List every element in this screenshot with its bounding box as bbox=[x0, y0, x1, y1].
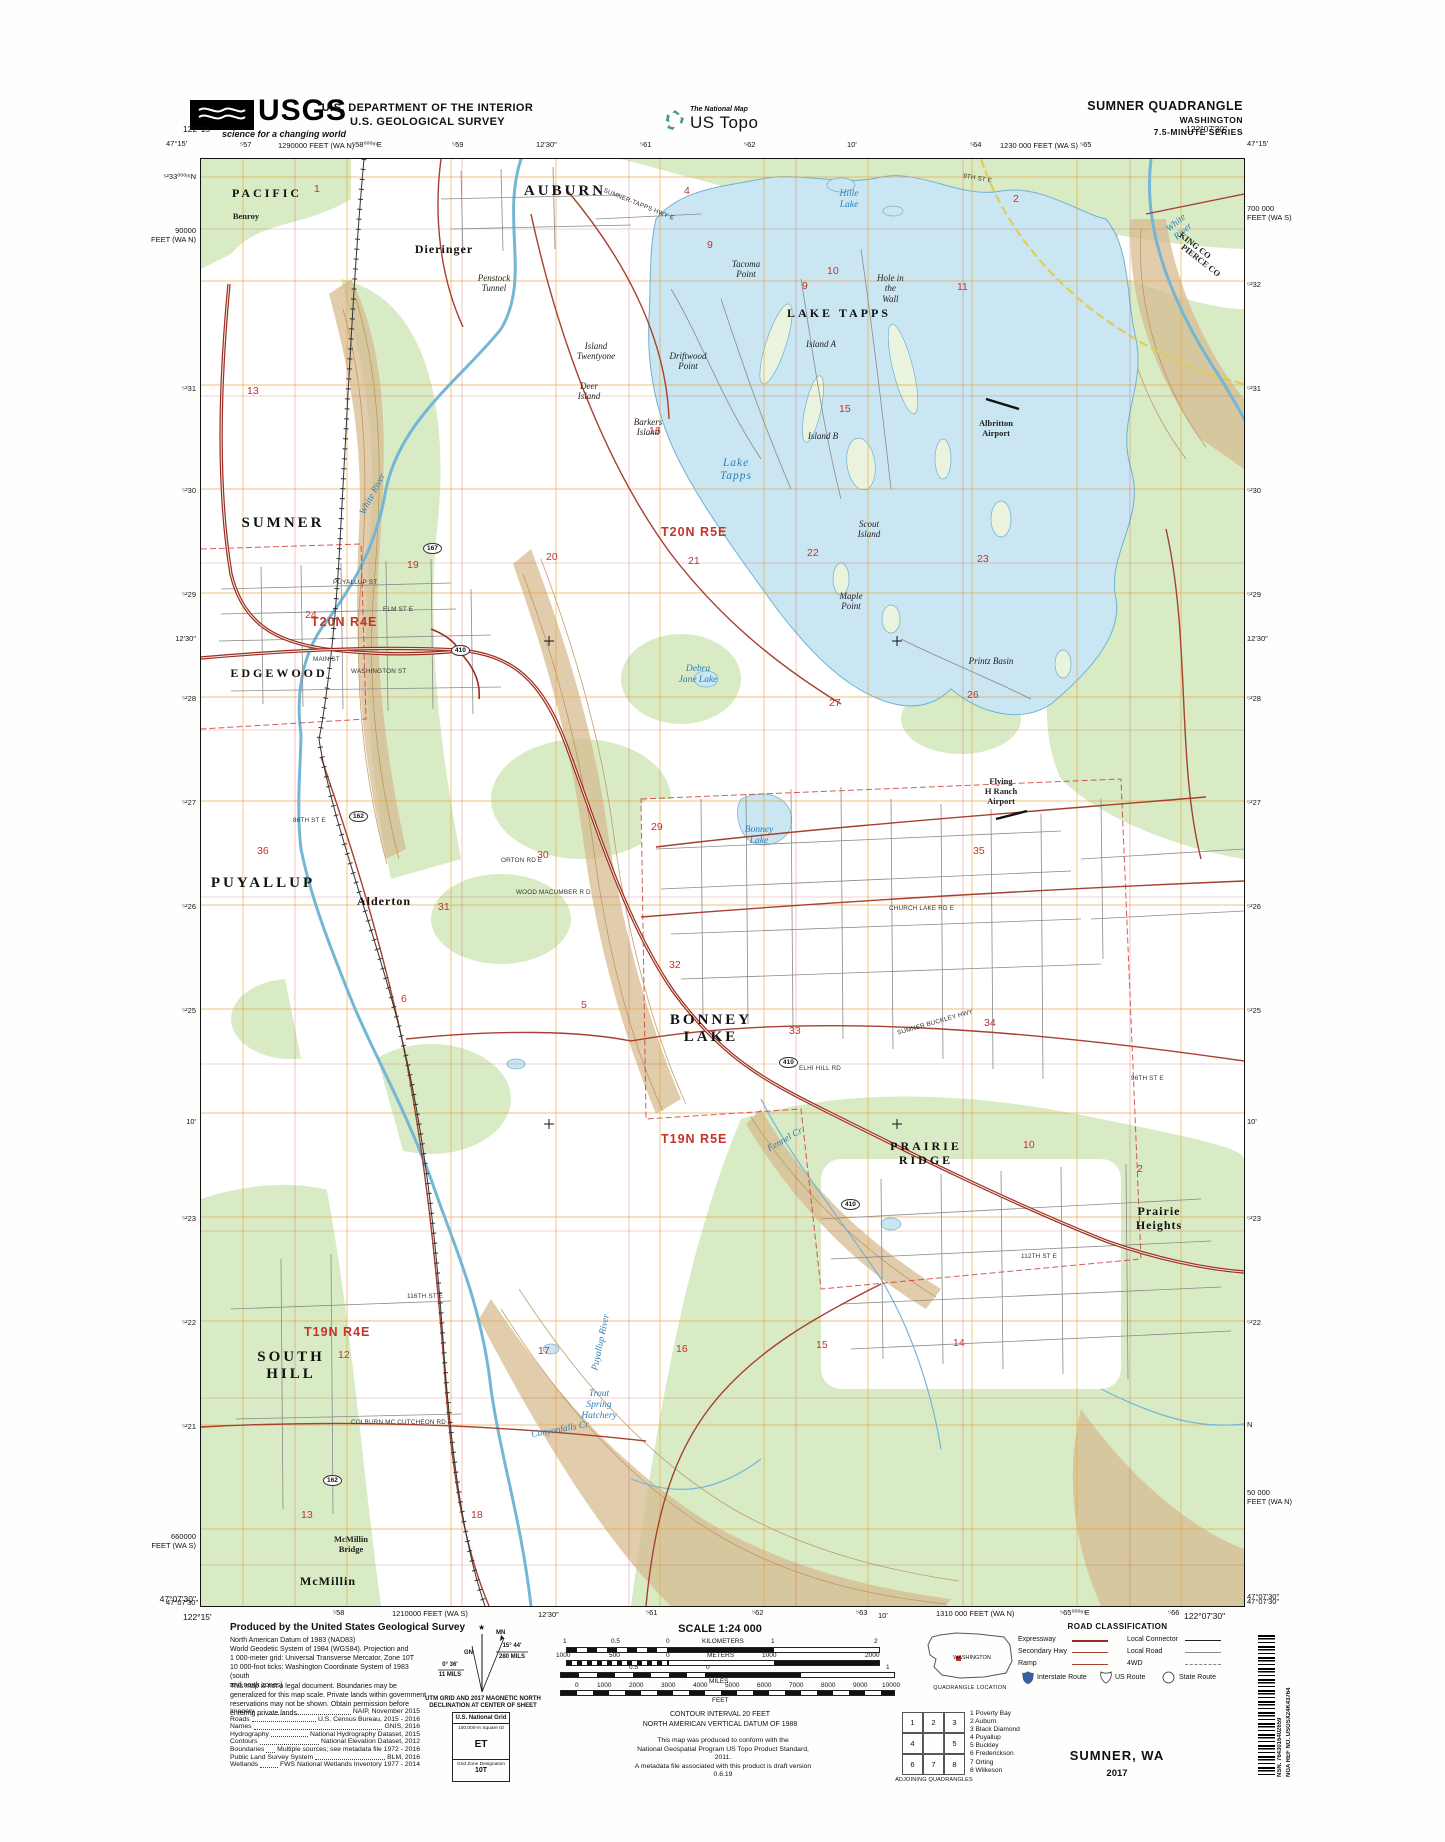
credit-row: RoadsU.S. Census Bureau, 2015 - 2016 bbox=[230, 1716, 420, 1724]
scalebar-kilometers bbox=[566, 1647, 880, 1653]
margin-label: 660000 bbox=[146, 1532, 196, 1541]
place-bonney-lake: BONNEY LAKE bbox=[670, 1012, 752, 1047]
map-label: 96TH ST E bbox=[1131, 1075, 1164, 1082]
margin-label: ⁵²27 bbox=[1247, 798, 1261, 807]
map-label: 35 bbox=[973, 845, 985, 857]
map-label: 2 bbox=[1013, 193, 1019, 205]
map-label: 9 bbox=[707, 239, 713, 251]
datum-line: 1 000-meter grid: Universal Transverse M… bbox=[230, 1654, 430, 1663]
margin-label: ⁵²26 bbox=[146, 902, 196, 911]
barcode-nsn: NSN. 7643016402659 bbox=[1277, 1635, 1283, 1777]
magnetic-north-label: MN bbox=[496, 1630, 505, 1637]
legend-4wd: 4WD bbox=[1127, 1660, 1143, 1667]
quadloc-caption: QUADRANGLE LOCATION bbox=[920, 1685, 1020, 1691]
map-label: 13 bbox=[301, 1509, 313, 1521]
dots-leader bbox=[252, 1721, 316, 1722]
adjoining-grid: 12345678 bbox=[902, 1712, 965, 1775]
township-t20n-r4e: T20N R4E bbox=[311, 615, 377, 629]
contour-note: CONTOUR INTERVAL 20 FEET NORTH AMERICAN … bbox=[640, 1710, 800, 1729]
credit-row: HydrographyNational Hydrography Dataset,… bbox=[230, 1731, 420, 1739]
margin-label: ⁵²32 bbox=[1247, 280, 1261, 289]
scale-label: 2 bbox=[874, 1638, 878, 1645]
national-map-logo: The National Map US Topo bbox=[664, 106, 758, 133]
map-label: 17 bbox=[538, 1345, 550, 1357]
credit-key: Boundaries bbox=[230, 1746, 264, 1754]
place-edgewood: EDGEWOOD bbox=[230, 667, 327, 681]
ramp-line bbox=[1072, 1664, 1108, 1665]
scale-label: 0 bbox=[575, 1682, 579, 1689]
barcode bbox=[1258, 1635, 1275, 1775]
department-heading: U.S. DEPARTMENT OF THE INTERIOR U.S. GEO… bbox=[285, 101, 570, 129]
margin-label: 122°15' bbox=[183, 1612, 212, 1622]
place-south-hill: SOUTH HILL bbox=[257, 1349, 325, 1384]
margin-label: 1210000 FEET (WA S) bbox=[392, 1609, 468, 1618]
dots-leader bbox=[260, 1744, 319, 1745]
margin-label: 10' bbox=[847, 140, 857, 149]
map-label: McMillin Bridge bbox=[334, 1535, 368, 1555]
credit-key: Hydrography bbox=[230, 1731, 269, 1739]
map-label: Debra Jane Lake bbox=[679, 664, 718, 686]
place-mcmillin: McMillin bbox=[300, 1575, 356, 1589]
map-label: 1 bbox=[314, 183, 320, 195]
credit-key: Imagery bbox=[230, 1708, 255, 1716]
margin-label: ⁵63 bbox=[856, 1608, 867, 1617]
scale-label: METERS bbox=[707, 1652, 734, 1659]
map-label: PUYALLUP ST bbox=[333, 579, 377, 586]
map-label: ORTON RD E bbox=[501, 857, 542, 864]
map-label: 31 bbox=[438, 901, 450, 913]
place-lake-tapps: LAKE TAPPS bbox=[787, 307, 891, 321]
map-label: White River bbox=[358, 472, 389, 517]
credit-row: Public Land Survey SystemBLM, 2016 bbox=[230, 1754, 420, 1762]
map-label: ELHI HILL RD bbox=[799, 1065, 841, 1072]
scale-label: 6000 bbox=[757, 1682, 771, 1689]
margin-label: 90000 bbox=[146, 226, 196, 235]
map-label: Island A bbox=[806, 339, 836, 349]
margin-label: ⁵65⁰⁰⁰ᵐE bbox=[1060, 1608, 1090, 1617]
adjoining-cell: 5 bbox=[944, 1733, 966, 1755]
map-label: Hole in the Wall bbox=[877, 273, 904, 304]
legend-local-road: Local Road bbox=[1127, 1648, 1162, 1655]
scale-label: 0 bbox=[666, 1652, 670, 1659]
map-label: 24 bbox=[305, 609, 317, 621]
legend-expressway: Expressway bbox=[1018, 1636, 1056, 1643]
margin-label: ⁵61 bbox=[646, 1608, 657, 1617]
natmap-small-label: The National Map bbox=[690, 106, 758, 113]
map-label: Scout Island bbox=[858, 519, 881, 540]
margin-label: 10' bbox=[146, 1117, 196, 1126]
map-label: SUMNER-TAPPS HWY E bbox=[602, 187, 675, 222]
scale-label: 8000 bbox=[821, 1682, 835, 1689]
margin-label: ⁵²28 bbox=[146, 694, 196, 703]
map-label: 12 bbox=[338, 1349, 350, 1361]
standard-line: A metadata file associated with this pro… bbox=[630, 1763, 816, 1780]
route-shield-410: 410 bbox=[841, 1199, 860, 1210]
usng-zone-label: Grid Zone Designation bbox=[453, 1759, 509, 1767]
map-label: Island Twentyone bbox=[577, 341, 615, 362]
datum-line: World Geodetic System of 1984 (WGS84). P… bbox=[230, 1645, 430, 1654]
quad-name: SUMNER QUADRANGLE bbox=[1020, 99, 1243, 113]
map-label: 4 bbox=[684, 185, 690, 197]
map-label: SUMNER BUCKLEY HWY bbox=[897, 1008, 974, 1037]
production-credits: Produced by the United States Geological… bbox=[230, 1622, 430, 1690]
credit-value: BLM, 2016 bbox=[387, 1754, 420, 1762]
adjoining-cell bbox=[923, 1733, 945, 1755]
map-label: 116TH ST E bbox=[407, 1293, 443, 1300]
credit-value: National Hydrography Dataset, 2015 bbox=[310, 1731, 420, 1739]
map-label: Canyonfalls Cr bbox=[530, 1420, 589, 1441]
map-label: 29 bbox=[651, 821, 663, 833]
margin-label: ⁵61 bbox=[640, 140, 651, 149]
margin-label: ⁵²28 bbox=[1247, 694, 1261, 703]
margin-label: 12'30" bbox=[1247, 634, 1268, 643]
scale-title: SCALE 1:24 000 bbox=[640, 1623, 800, 1635]
mn-mils: 280 MILS bbox=[496, 1654, 528, 1661]
margin-label: ⁵²29 bbox=[1247, 590, 1261, 599]
produced-title: Produced by the United States Geological… bbox=[230, 1622, 430, 1633]
legal-line: This map is not a legal document. Bounda… bbox=[230, 1682, 430, 1691]
credit-row: NamesGNIS, 2016 bbox=[230, 1723, 420, 1731]
map-label: 34 bbox=[984, 1017, 996, 1029]
map-label: Flying H Ranch Airport bbox=[985, 777, 1017, 806]
map-label: Trout Spring Hatchery bbox=[581, 1389, 616, 1422]
township-t19n-r5e: T19N R5E bbox=[661, 1132, 727, 1146]
adjoining-name: 3 Black Diamond bbox=[970, 1726, 1060, 1734]
place-puyallup: PUYALLUP bbox=[211, 875, 315, 892]
quadrangle-location: WASHINGTON bbox=[925, 1630, 1017, 1687]
place-prairie-ridge: PRAIRIE RIDGE bbox=[890, 1140, 962, 1168]
credit-value: U.S. Census Bureau, 2015 - 2016 bbox=[318, 1716, 420, 1724]
margin-label: ⁵²25 bbox=[146, 1006, 196, 1015]
township-t19n-r4e: T19N R4E bbox=[304, 1325, 370, 1339]
margin-label: 47°15' bbox=[1247, 139, 1268, 148]
natmap-big-label: US Topo bbox=[690, 113, 758, 133]
datum-line: 10 000-foot ticks: Washington Coordinate… bbox=[230, 1663, 430, 1681]
legend-secondary-hwy: Secondary Hwy bbox=[1018, 1648, 1067, 1655]
declination-caption: UTM GRID AND 2017 MAGNETIC NORTH DECLINA… bbox=[408, 1696, 558, 1710]
margin-label: 47°15' bbox=[166, 139, 187, 148]
margin-label: ⁵58⁰⁰⁰ᵐE bbox=[352, 140, 382, 149]
usng-square-label: 100,000-m Square ID bbox=[453, 1724, 509, 1731]
map-labels-layer: PACIFICBenroyAUBURNDieringerTacoma Point… bbox=[201, 159, 1244, 1606]
map-label: CHURCH LAKE RD E bbox=[889, 905, 954, 912]
map-label: Fennel Cr bbox=[766, 1126, 805, 1155]
gn-angle: 0° 36' bbox=[436, 1662, 464, 1669]
mn-angle: 15° 44' bbox=[496, 1643, 528, 1650]
map-label: 86TH ST E bbox=[293, 817, 326, 824]
margin-label: 10' bbox=[878, 1611, 888, 1620]
margin-label: ⁵66 bbox=[1168, 1608, 1179, 1617]
map-label: ELM ST E bbox=[383, 606, 413, 613]
scalebar-meters bbox=[566, 1660, 880, 1666]
us-route-shield-icon bbox=[1100, 1671, 1112, 1684]
map-label: 16 bbox=[676, 1343, 688, 1355]
standard-line: National Geospatial Program US Topo Prod… bbox=[630, 1746, 816, 1763]
map-label: 6 bbox=[401, 993, 407, 1005]
adjoining-cell: 6 bbox=[902, 1754, 924, 1776]
credit-key: Wetlands bbox=[230, 1761, 258, 1769]
margin-label: FEET (WA S) bbox=[1247, 213, 1292, 222]
map-label: 19 bbox=[407, 559, 419, 571]
adjoining-name: 1 Poverty Bay bbox=[970, 1710, 1060, 1718]
map-label: 9TH ST E bbox=[963, 173, 993, 185]
standard-line: This map was produced to conform with th… bbox=[630, 1737, 816, 1746]
legend-interstate-route: Interstate Route bbox=[1037, 1674, 1087, 1681]
margin-label: 1290000 FEET (WA N) bbox=[278, 141, 354, 150]
dots-leader bbox=[271, 1736, 308, 1737]
scale-label: 1 bbox=[886, 1664, 890, 1671]
margin-label: ⁵²25 bbox=[1247, 1006, 1261, 1015]
margin-label: 1310 000 FEET (WA N) bbox=[936, 1609, 1014, 1618]
scale-label: 0 bbox=[666, 1638, 670, 1645]
credit-value: GNIS, 2016 bbox=[384, 1723, 420, 1731]
map-label: 16 bbox=[649, 425, 661, 437]
adjoining-name: 4 Puyallup bbox=[970, 1734, 1060, 1742]
margin-label: ⁵²30 bbox=[1247, 486, 1261, 495]
scalebar-feet bbox=[560, 1690, 895, 1696]
adjoining-cell: 1 bbox=[902, 1712, 924, 1734]
state-label: WASHINGTON bbox=[953, 1655, 991, 1661]
map-label: 22 bbox=[807, 547, 819, 559]
scale-label: 1000 bbox=[597, 1682, 611, 1689]
margin-label: 122°07'30" bbox=[1184, 1611, 1225, 1621]
sheet-title: SUMNER, WA bbox=[1037, 1748, 1197, 1763]
map-label: Tacoma Point bbox=[732, 259, 760, 280]
place-benroy: Benroy bbox=[233, 212, 259, 222]
margin-label: 47°07'30" bbox=[166, 1598, 198, 1607]
source-credits: ImageryNAIP, November 2015 RoadsU.S. Cen… bbox=[230, 1708, 420, 1769]
dots-leader bbox=[254, 1729, 383, 1730]
margin-label: ⁵²33⁰⁰⁰ᵐN bbox=[146, 172, 196, 181]
map-label: 13 bbox=[247, 385, 259, 397]
margin-label: FEET (WA S) bbox=[146, 1541, 196, 1550]
credit-key: Contours bbox=[230, 1738, 258, 1746]
margin-label: ⁵²31 bbox=[1247, 384, 1261, 393]
legend-state-route: State Route bbox=[1179, 1674, 1216, 1681]
margin-label: FEET (WA N) bbox=[146, 235, 196, 244]
map-label: 26 bbox=[967, 689, 979, 701]
place-auburn: AUBURN bbox=[524, 183, 606, 200]
margin-label: 12'30" bbox=[146, 634, 196, 643]
township-t20n-r5e: T20N R5E bbox=[661, 525, 727, 539]
margin-label: ⁵62 bbox=[744, 140, 755, 149]
scale-label: 3000 bbox=[661, 1682, 675, 1689]
sheet-year: 2017 bbox=[1037, 1768, 1197, 1779]
usgs-wave-icon bbox=[197, 104, 247, 126]
map-label: 10 bbox=[1023, 1139, 1035, 1151]
margin-label: 12'30" bbox=[538, 1610, 559, 1619]
margin-label: ⁵²27 bbox=[146, 798, 196, 807]
dots-leader bbox=[266, 1752, 275, 1753]
map-label: 23 bbox=[977, 553, 989, 565]
scale-label: 2000 bbox=[865, 1652, 879, 1659]
scale-label: KILOMETERS bbox=[702, 1638, 744, 1645]
us-topo-icon bbox=[664, 109, 686, 131]
map-label: 36 bbox=[257, 845, 269, 857]
margin-label: ⁵²22 bbox=[1247, 1318, 1261, 1327]
adjoining-cell: 3 bbox=[944, 1712, 966, 1734]
scale-label: 500 bbox=[609, 1652, 620, 1659]
usng-box: U.S. National Grid 100,000-m Square ID E… bbox=[452, 1712, 510, 1782]
map-label: Printz Basin bbox=[969, 656, 1014, 666]
sheet-title-block: SUMNER, WA 2017 bbox=[1037, 1748, 1197, 1779]
topo-map-body: PACIFICBenroyAUBURNDieringerTacoma Point… bbox=[200, 158, 1245, 1607]
margin-label: N bbox=[1247, 1420, 1252, 1429]
map-label: 21 bbox=[688, 555, 700, 567]
margin-label: 122°15' bbox=[183, 124, 212, 134]
map-label: Hille Lake bbox=[840, 189, 859, 211]
scale-label: 1000 bbox=[762, 1652, 776, 1659]
map-label: Driftwood Point bbox=[669, 351, 706, 372]
secondary-hwy-line bbox=[1072, 1652, 1108, 1653]
interstate-shield-icon bbox=[1022, 1671, 1034, 1684]
map-label: 112TH ST E bbox=[1021, 1253, 1057, 1260]
margin-label: 47°07'30" bbox=[1247, 1597, 1279, 1606]
scale-label: 10000 bbox=[882, 1682, 900, 1689]
scale-label: 1 bbox=[771, 1638, 775, 1645]
gn-mils: 11 MILS bbox=[436, 1672, 464, 1679]
legend-us-route: US Route bbox=[1115, 1674, 1145, 1681]
scale-label: 0.5 bbox=[611, 1638, 620, 1645]
map-label: 20 bbox=[546, 551, 558, 563]
fourwd-line bbox=[1185, 1664, 1221, 1665]
route-shield-410: 410 bbox=[779, 1057, 798, 1068]
place-pacific: PACIFIC bbox=[232, 187, 302, 201]
dots-leader bbox=[257, 1714, 351, 1715]
margin-label: ⁵²21 bbox=[146, 1422, 196, 1431]
margin-label: ⁵²23 bbox=[146, 1214, 196, 1223]
margin-label: 10' bbox=[1247, 1117, 1257, 1126]
usng-title: U.S. National Grid bbox=[453, 1713, 509, 1724]
grid-north-label: GN bbox=[464, 1650, 473, 1657]
route-shield-410: 410 bbox=[451, 645, 470, 656]
contour-interval: CONTOUR INTERVAL 20 FEET bbox=[640, 1710, 800, 1720]
declination-diagram: ★ GN MN 0° 36' 11 MILS 15° 44' 280 MILS bbox=[430, 1626, 540, 1698]
map-label: Puyallup River bbox=[590, 1313, 613, 1371]
margin-label: ⁵65 bbox=[1080, 140, 1091, 149]
map-label: 14 bbox=[953, 1337, 965, 1349]
usgs-tagline: science for a changing world bbox=[222, 129, 346, 139]
map-label: 11 bbox=[957, 281, 968, 293]
scale-label: 2000 bbox=[629, 1682, 643, 1689]
barcode-nga-ref: NGA REF NO. USGSX24K43764 bbox=[1286, 1635, 1292, 1777]
map-label: 15 bbox=[839, 403, 851, 415]
scale-label: 1000 bbox=[556, 1652, 570, 1659]
map-label: Lake Tapps bbox=[720, 457, 752, 483]
adjoining-cell: 8 bbox=[944, 1754, 966, 1776]
margin-label: ⁵²26 bbox=[1247, 902, 1261, 911]
margin-label: ⁵²31 bbox=[146, 384, 196, 393]
usng-square-id: ET bbox=[453, 1731, 509, 1759]
credit-key: Public Land Survey System bbox=[230, 1754, 313, 1762]
map-label: 2 bbox=[1137, 1163, 1143, 1175]
legal-line: generalized for this map scale. Private … bbox=[230, 1691, 430, 1700]
true-north-star: ★ bbox=[478, 1624, 485, 1631]
map-label: 5 bbox=[581, 999, 587, 1011]
credit-value: Multiple sources; see metadata file 1972… bbox=[277, 1746, 420, 1754]
usng-zone: 10T bbox=[453, 1767, 509, 1774]
map-label: WASHINGTON ST bbox=[351, 668, 406, 675]
map-label: 10 bbox=[827, 265, 839, 277]
datum-line: North American Datum of 1983 (NAD83) bbox=[230, 1636, 430, 1645]
margin-label: ⁵²29 bbox=[146, 590, 196, 599]
standard-note: This map was produced to conform with th… bbox=[630, 1737, 816, 1780]
map-label: Maple Point bbox=[840, 591, 863, 612]
route-shield-162: 162 bbox=[349, 811, 368, 822]
margin-label: ⁵57 bbox=[240, 140, 251, 149]
place-alderton: Alderton bbox=[357, 895, 411, 909]
adjoining-cell: 4 bbox=[902, 1733, 924, 1755]
adjoining-name: 2 Auburn bbox=[970, 1718, 1060, 1726]
local-connector-line bbox=[1185, 1640, 1221, 1641]
margin-label: 1230 000 FEET (WA S) bbox=[1000, 141, 1078, 150]
scalebar-miles bbox=[560, 1672, 895, 1678]
washington-state-outline: WASHINGTON bbox=[925, 1630, 1017, 1682]
credit-row: WetlandsFWS National Wetlands Inventory … bbox=[230, 1761, 420, 1769]
credit-key: Names bbox=[230, 1723, 252, 1731]
scale-label: 1 bbox=[563, 1638, 567, 1645]
local-road-line bbox=[1185, 1652, 1221, 1653]
dots-leader bbox=[315, 1759, 385, 1760]
map-label: 27 bbox=[829, 697, 841, 709]
adjoining-caption: ADJOINING QUADRANGLES bbox=[880, 1777, 988, 1783]
map-label: Deer Island bbox=[578, 381, 601, 402]
margin-label: ⁵²22 bbox=[146, 1318, 196, 1327]
margin-label: 122°07'30" bbox=[1186, 124, 1227, 134]
credit-value: FWS National Wetlands Inventory 1977 - 2… bbox=[280, 1761, 420, 1769]
expressway-line bbox=[1072, 1640, 1108, 1642]
adjoining-cell: 7 bbox=[923, 1754, 945, 1776]
margin-label: FEET (WA N) bbox=[1247, 1497, 1292, 1506]
credit-row: ContoursNational Elevation Dataset, 2012 bbox=[230, 1738, 420, 1746]
credit-key: Roads bbox=[230, 1716, 250, 1724]
scale-label: 7000 bbox=[789, 1682, 803, 1689]
credit-value: National Elevation Dataset, 2012 bbox=[321, 1738, 420, 1746]
map-label: Penstock Tunnel bbox=[478, 273, 510, 294]
map-label: 33 bbox=[789, 1025, 801, 1037]
map-label: WOOD MACUMBER R D bbox=[516, 889, 591, 896]
map-label: 32 bbox=[669, 959, 681, 971]
usgs-topo-sheet: USGS science for a changing world U.S. D… bbox=[0, 0, 1445, 1842]
margin-label: ⁵58 bbox=[333, 1608, 344, 1617]
scale-label: 9000 bbox=[853, 1682, 867, 1689]
vertical-datum: NORTH AMERICAN VERTICAL DATUM OF 1988 bbox=[640, 1720, 800, 1730]
adjoining-cell: 2 bbox=[923, 1712, 945, 1734]
map-label: 15 bbox=[816, 1339, 828, 1351]
credit-row: BoundariesMultiple sources; see metadata… bbox=[230, 1746, 420, 1754]
margin-label: ⁵²30 bbox=[146, 486, 196, 495]
margin-label: ⁵59 bbox=[452, 140, 463, 149]
margin-label: ⁵62 bbox=[752, 1608, 763, 1617]
legend-local-connector: Local Connector bbox=[1127, 1636, 1178, 1643]
scale-label: 5000 bbox=[725, 1682, 739, 1689]
dept-line1: U.S. DEPARTMENT OF THE INTERIOR bbox=[285, 101, 570, 115]
map-label: Albritton Airport bbox=[979, 419, 1013, 439]
legend-ramp: Ramp bbox=[1018, 1660, 1037, 1667]
margin-label: ⁵²23 bbox=[1247, 1214, 1261, 1223]
road-classification-title: ROAD CLASSIFICATION bbox=[1050, 1622, 1185, 1631]
scale-label: 4000 bbox=[693, 1682, 707, 1689]
margin-label: 50 000 bbox=[1247, 1488, 1270, 1497]
place-dieringer: Dieringer bbox=[415, 243, 473, 257]
map-label: Bonney Lake bbox=[745, 825, 774, 847]
state-route-circle-icon bbox=[1162, 1671, 1175, 1684]
dots-leader bbox=[260, 1767, 278, 1768]
margin-label: 12'30" bbox=[536, 140, 557, 149]
route-shield-167: 167 bbox=[423, 543, 442, 554]
credit-row: ImageryNAIP, November 2015 bbox=[230, 1708, 420, 1716]
declination-caption-line2: DECLINATION AT CENTER OF SHEET bbox=[408, 1703, 558, 1710]
